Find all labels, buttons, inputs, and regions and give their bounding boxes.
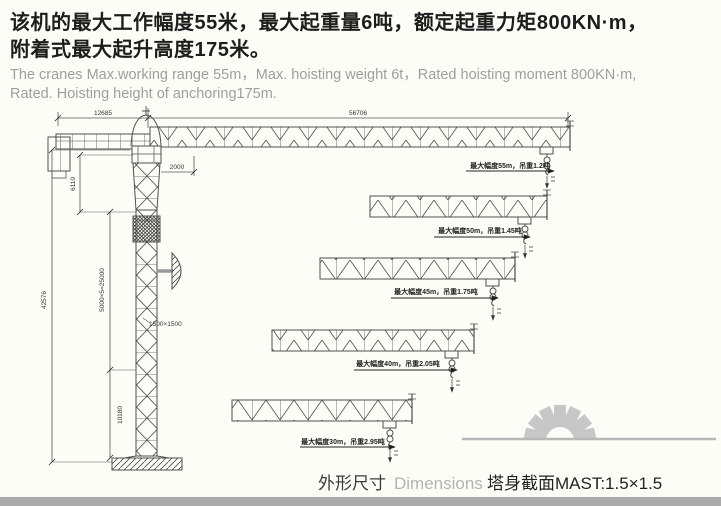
top-dimension-line: [55, 108, 571, 128]
dim-head-section: 6110: [70, 177, 77, 191]
counterweight-block: [48, 137, 70, 171]
dim-main-jib: 56706: [349, 110, 367, 117]
config-label-55m: 最大幅度55m，吊重1.2吨: [470, 161, 550, 170]
main-jib: [150, 121, 574, 151]
config-label-40m: 最大幅度40m，吊重2.05吨: [356, 359, 440, 368]
footer-caption: 外形尺寸Dimensions: [318, 469, 483, 494]
dim-total-height: 42576: [41, 291, 48, 309]
dim-base-section: 10180: [117, 406, 124, 424]
dim-standard-sections: 5000×5=25000: [99, 268, 106, 312]
config-label-45m: 最大幅度45m，吊重1.75吨: [394, 287, 478, 296]
crane-dimension-diagram: 12685 56706 最大幅度55m，吊重1.2吨: [0, 0, 721, 506]
dim-mast-section: 1500×1500: [149, 321, 182, 328]
bottom-bar: [0, 497, 721, 506]
tower-base: [112, 458, 182, 470]
footer-caption-cn: 外形尺寸: [318, 474, 386, 493]
jib-config-50m: [370, 190, 551, 258]
gear-logo: [524, 405, 597, 468]
mast-section-caption: 塔身截面MAST:1.5×1.5: [487, 469, 662, 494]
climbing-cage: [133, 216, 160, 242]
anchorage-tie: [157, 253, 181, 289]
jib-config-30m: [232, 394, 416, 462]
config-label-30m: 最大幅度30m，吊重2.95吨: [301, 437, 385, 446]
dim-counter-jib: 12685: [94, 110, 112, 117]
footer-caption-en: Dimensions: [394, 474, 483, 493]
jib-config-40m: [272, 324, 478, 392]
config-label-50m: 最大幅度50m，吊重1.45吨: [438, 226, 522, 235]
dim-jib-offset: 2000: [170, 164, 185, 171]
jib-config-45m: [320, 252, 519, 320]
brochure-page: 该机的最大工作幅度55米，最大起重量6吨，额定起重力矩800KN·m， 附着式最…: [0, 0, 721, 506]
